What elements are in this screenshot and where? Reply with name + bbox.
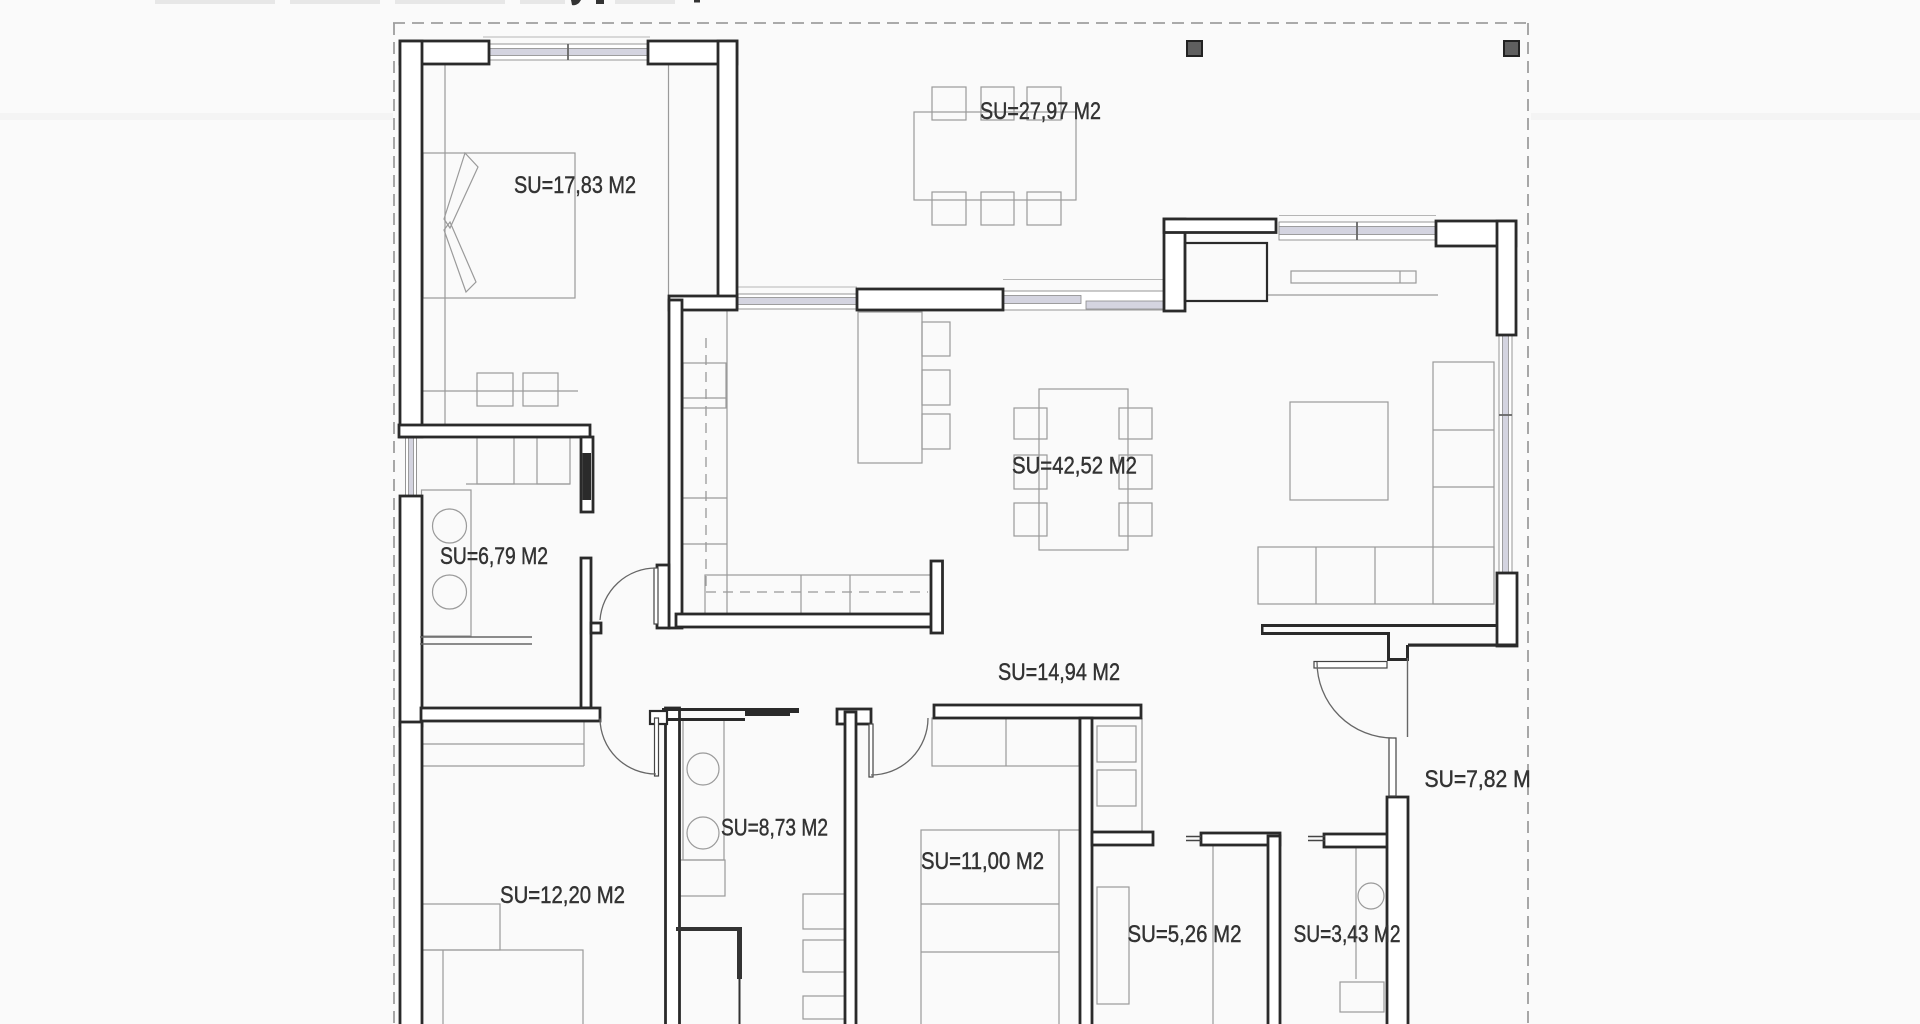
svg-text:SU=7,82 M2: SU=7,82 M2 xyxy=(1425,766,1543,793)
svg-text:SU=3,43 M2: SU=3,43 M2 xyxy=(1294,921,1401,948)
svg-text:SU=27,97 M2: SU=27,97 M2 xyxy=(980,98,1101,125)
svg-text:SU=14,94 M2: SU=14,94 M2 xyxy=(998,659,1120,686)
svg-text:SU=6,79 M2: SU=6,79 M2 xyxy=(440,543,548,570)
svg-text:SU=11,00 M2: SU=11,00 M2 xyxy=(921,848,1044,875)
svg-text:SU=17,83 M2: SU=17,83 M2 xyxy=(514,172,636,199)
svg-text:SU=42,52 M2: SU=42,52 M2 xyxy=(1012,453,1137,480)
svg-text:SU=8,73 M2: SU=8,73 M2 xyxy=(721,815,828,842)
svg-text:SU=5,26 M2: SU=5,26 M2 xyxy=(1128,921,1242,948)
svg-text:SU=12,20 M2: SU=12,20 M2 xyxy=(500,882,625,909)
